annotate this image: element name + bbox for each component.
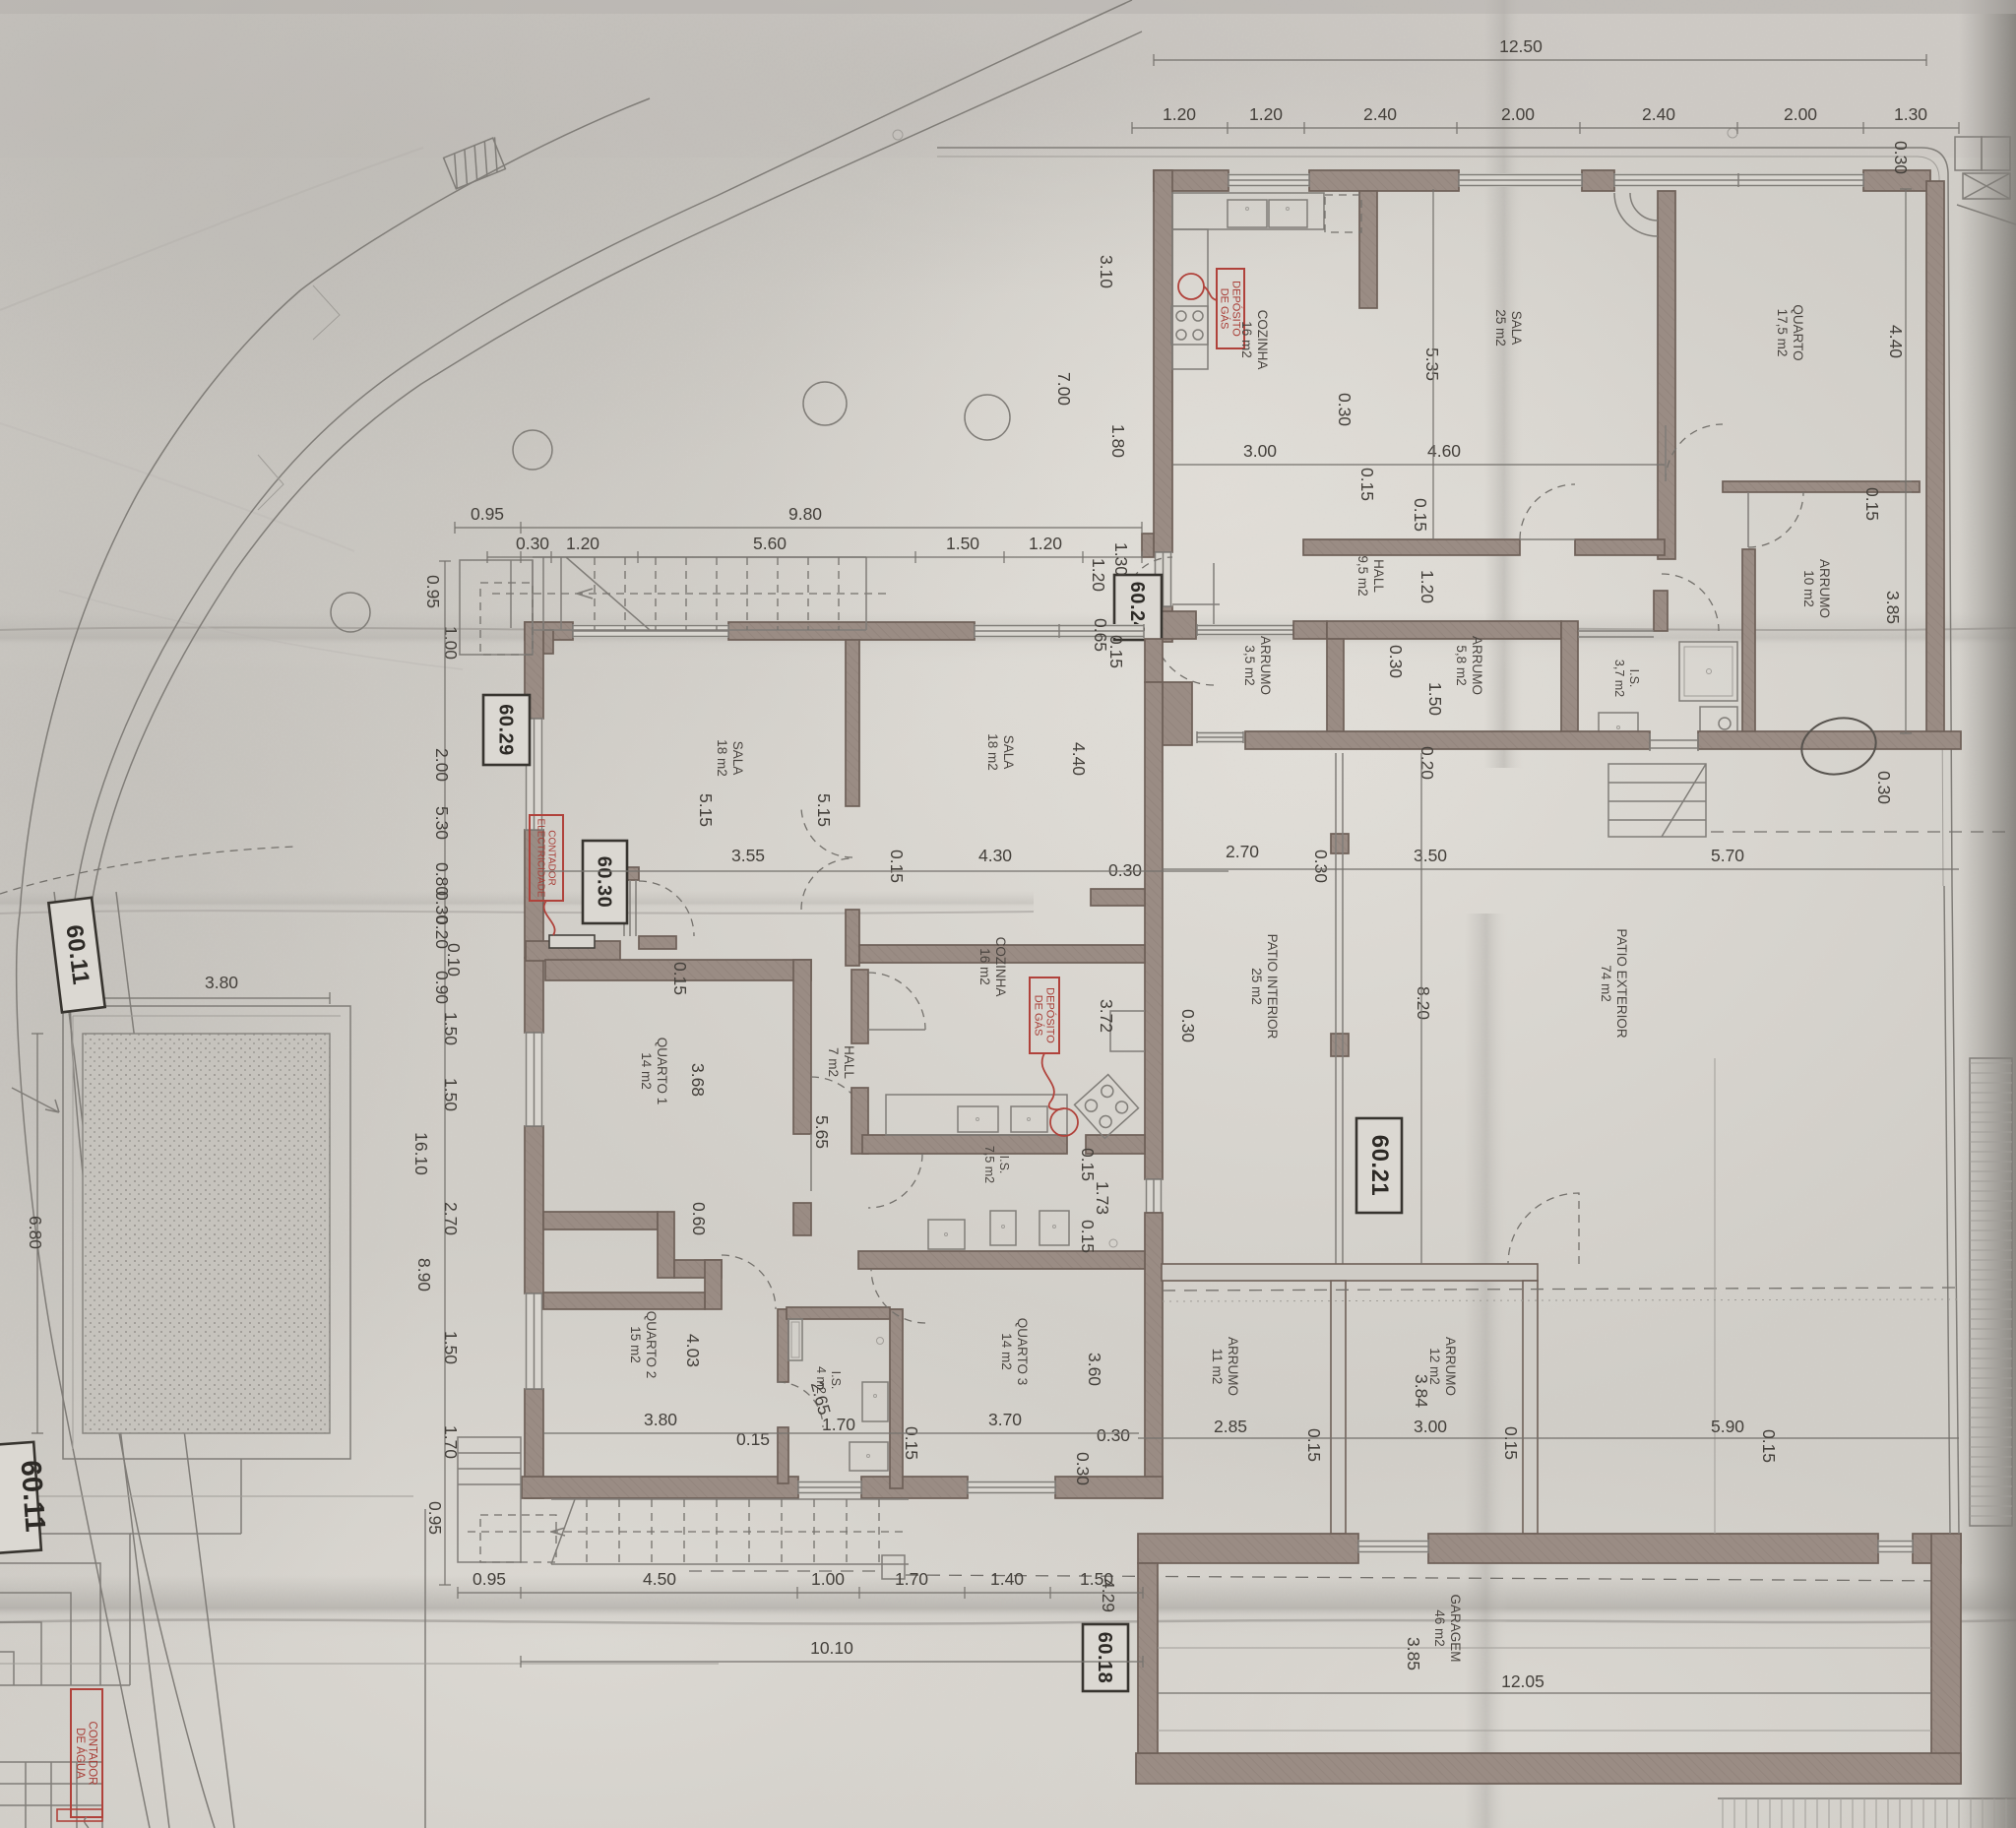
- svg-text:0.15: 0.15: [1078, 1148, 1098, 1181]
- svg-text:DE ÁGUA: DE ÁGUA: [74, 1728, 87, 1779]
- svg-text:0.15: 0.15: [1501, 1426, 1521, 1460]
- svg-text:5.30: 5.30: [432, 806, 452, 840]
- svg-text:0.30: 0.30: [1178, 1009, 1198, 1042]
- svg-text:10.10: 10.10: [810, 1638, 853, 1658]
- svg-text:QUARTO17,5 m2: QUARTO17,5 m2: [1775, 304, 1805, 360]
- svg-text:2.70: 2.70: [1226, 842, 1259, 861]
- svg-text:1.30: 1.30: [1111, 542, 1131, 576]
- svg-text:4.29: 4.29: [1099, 1579, 1118, 1612]
- svg-text:0.15: 0.15: [1759, 1429, 1779, 1463]
- svg-text:3.10: 3.10: [1097, 255, 1116, 288]
- svg-text:1.50: 1.50: [441, 1078, 461, 1111]
- svg-text:DE GÁS: DE GÁS: [1218, 288, 1230, 330]
- svg-text:1.20: 1.20: [1417, 570, 1437, 603]
- svg-text:1.30: 1.30: [1894, 104, 1927, 124]
- svg-text:4.40: 4.40: [1886, 325, 1906, 358]
- svg-text:0.30: 0.30: [1874, 771, 1894, 804]
- svg-text:SALA18 m2: SALA18 m2: [715, 739, 745, 777]
- svg-text:4.03: 4.03: [683, 1334, 703, 1367]
- svg-text:0.30: 0.30: [1097, 1425, 1130, 1445]
- svg-text:0.15: 0.15: [887, 850, 907, 883]
- svg-text:1.00: 1.00: [441, 626, 461, 660]
- svg-text:3.68: 3.68: [688, 1063, 708, 1097]
- svg-text:SALA25 m2: SALA25 m2: [1493, 309, 1524, 347]
- svg-text:3.00: 3.00: [1414, 1417, 1447, 1436]
- svg-text:0.15: 0.15: [1106, 635, 1126, 668]
- svg-text:4.50: 4.50: [643, 1569, 676, 1589]
- svg-text:0.95: 0.95: [472, 1569, 506, 1589]
- svg-text:3.85: 3.85: [1883, 591, 1903, 624]
- svg-text:0.15: 0.15: [736, 1429, 770, 1449]
- svg-text:1.50: 1.50: [946, 534, 979, 553]
- svg-text:0.30: 0.30: [516, 534, 549, 553]
- svg-text:5.15: 5.15: [814, 793, 834, 827]
- svg-text:8.20: 8.20: [1414, 986, 1433, 1020]
- svg-text:5.35: 5.35: [1422, 347, 1442, 381]
- svg-text:4.60: 4.60: [1427, 441, 1461, 461]
- svg-text:16.10: 16.10: [411, 1132, 431, 1175]
- svg-text:CONTADOR: CONTADOR: [545, 830, 556, 885]
- svg-text:2.40: 2.40: [1642, 104, 1675, 124]
- svg-text:12.50: 12.50: [1499, 36, 1543, 56]
- svg-text:0.30: 0.30: [1108, 860, 1142, 880]
- svg-text:8.90: 8.90: [414, 1258, 434, 1292]
- svg-text:0.30: 0.30: [1073, 1452, 1093, 1485]
- svg-text:DE GÁS: DE GÁS: [1032, 995, 1044, 1037]
- svg-text:3.72: 3.72: [1097, 999, 1116, 1033]
- svg-text:HALL7 m2: HALL7 m2: [826, 1045, 856, 1079]
- svg-text:1.20: 1.20: [1163, 104, 1196, 124]
- svg-text:3.70: 3.70: [988, 1410, 1022, 1429]
- svg-text:1.70: 1.70: [822, 1415, 855, 1434]
- svg-text:0.60: 0.60: [689, 1202, 709, 1235]
- svg-text:1.50: 1.50: [441, 1331, 461, 1364]
- svg-text:5.70: 5.70: [1711, 846, 1744, 865]
- svg-text:0.15: 0.15: [1357, 468, 1377, 501]
- svg-text:5.65: 5.65: [812, 1115, 832, 1149]
- svg-text:2.70: 2.70: [441, 1202, 461, 1235]
- svg-text:1.50: 1.50: [1425, 682, 1445, 716]
- svg-text:3.00: 3.00: [1243, 441, 1277, 461]
- svg-text:DEPÓSITO: DEPÓSITO: [1043, 987, 1056, 1043]
- svg-text:1.00: 1.00: [811, 1569, 845, 1589]
- svg-text:60.18: 60.18: [1094, 1632, 1115, 1684]
- svg-text:1.20: 1.20: [566, 534, 599, 553]
- svg-text:4.40: 4.40: [1069, 742, 1089, 776]
- svg-text:0.30: 0.30: [1891, 141, 1911, 174]
- svg-text:0.95: 0.95: [423, 575, 443, 608]
- svg-text:0.30: 0.30: [1386, 645, 1406, 678]
- svg-text:4.30: 4.30: [978, 846, 1012, 865]
- svg-text:9.80: 9.80: [788, 504, 822, 524]
- svg-text:1.20: 1.20: [1249, 104, 1283, 124]
- svg-text:2.00: 2.00: [432, 748, 452, 782]
- svg-text:5.15: 5.15: [696, 793, 716, 827]
- svg-text:SALA18 m2: SALA18 m2: [985, 733, 1016, 771]
- svg-text:1.40: 1.40: [990, 1569, 1024, 1589]
- svg-text:0.20: 0.20: [1417, 746, 1437, 780]
- svg-text:1.73: 1.73: [1093, 1181, 1112, 1215]
- svg-text:12.05: 12.05: [1501, 1671, 1544, 1691]
- svg-text:0.15: 0.15: [1304, 1428, 1324, 1462]
- svg-text:3.60: 3.60: [1085, 1353, 1104, 1386]
- svg-text:3.80: 3.80: [205, 973, 238, 992]
- svg-text:1.70: 1.70: [441, 1425, 461, 1459]
- svg-text:5.90: 5.90: [1711, 1417, 1744, 1436]
- svg-text:60.21: 60.21: [1366, 1135, 1393, 1197]
- svg-text:1.20: 1.20: [1029, 534, 1062, 553]
- svg-text:ELECTRICIDADE: ELECTRICIDADE: [535, 818, 545, 897]
- svg-text:1.70: 1.70: [895, 1569, 928, 1589]
- svg-text:3.50: 3.50: [1414, 846, 1447, 865]
- svg-text:60.29: 60.29: [495, 704, 517, 756]
- svg-text:0.15: 0.15: [1411, 498, 1430, 532]
- svg-text:0.95: 0.95: [425, 1501, 445, 1535]
- svg-text:0.15: 0.15: [670, 962, 690, 995]
- svg-text:0.90: 0.90: [432, 971, 452, 1004]
- svg-text:0.15: 0.15: [1862, 487, 1882, 521]
- svg-text:3.85: 3.85: [1404, 1637, 1423, 1670]
- svg-text:1.80: 1.80: [1108, 424, 1128, 458]
- svg-text:2.40: 2.40: [1363, 104, 1397, 124]
- svg-text:3.80: 3.80: [644, 1410, 677, 1429]
- svg-text:2.00: 2.00: [1784, 104, 1817, 124]
- svg-text:60.30: 60.30: [594, 856, 615, 909]
- svg-text:0.15: 0.15: [902, 1426, 921, 1460]
- svg-text:1.20: 1.20: [1089, 558, 1108, 592]
- svg-text:6.80: 6.80: [26, 1216, 45, 1249]
- svg-text:CONTADOR: CONTADOR: [87, 1722, 98, 1786]
- svg-text:0.15: 0.15: [1078, 1220, 1098, 1253]
- svg-text:2.85: 2.85: [1214, 1417, 1247, 1436]
- svg-text:0.30: 0.30: [1335, 393, 1354, 426]
- svg-text:7.00: 7.00: [1054, 372, 1074, 406]
- svg-text:60.11: 60.11: [15, 1459, 51, 1534]
- svg-text:5.60: 5.60: [753, 534, 787, 553]
- svg-text:3.84: 3.84: [1412, 1374, 1431, 1408]
- svg-text:0.30: 0.30: [1311, 850, 1331, 883]
- svg-text:HALL9,5 m2: HALL9,5 m2: [1355, 555, 1386, 596]
- svg-text:0.95: 0.95: [471, 504, 504, 524]
- svg-text:3.55: 3.55: [731, 846, 765, 865]
- svg-text:1.50: 1.50: [441, 1012, 461, 1045]
- svg-text:2.00: 2.00: [1501, 104, 1535, 124]
